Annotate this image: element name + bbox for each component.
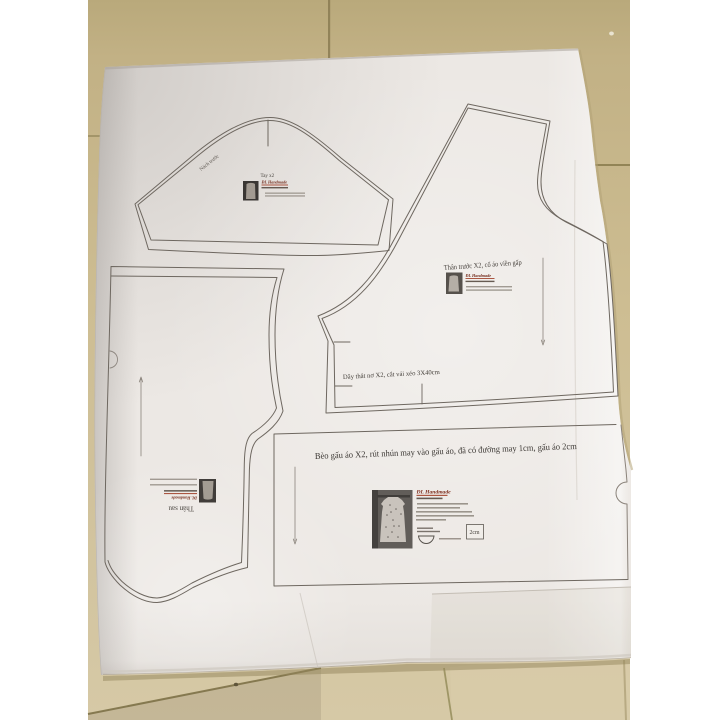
svg-text:Thân sau: Thân sau [168, 505, 194, 513]
svg-text:2cm: 2cm [470, 530, 480, 536]
svg-text:Tay x2: Tay x2 [261, 174, 275, 179]
svg-text:ĐL Handmade: ĐL Handmade [416, 490, 452, 496]
svg-text:ĐL Handmade: ĐL Handmade [465, 273, 492, 278]
svg-text:ĐL Handmade: ĐL Handmade [261, 180, 288, 185]
svg-text:ĐL Handmade: ĐL Handmade [171, 496, 198, 501]
